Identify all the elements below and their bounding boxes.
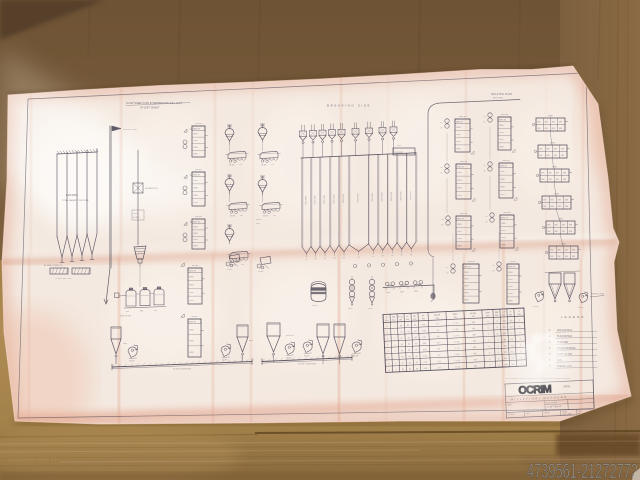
svg-text:888: 888: [558, 206, 561, 208]
svg-text:1: 1: [394, 325, 395, 327]
svg-text:888: 888: [399, 319, 402, 321]
svg-text:8.8: 8.8: [511, 345, 514, 347]
svg-text:888: 888: [537, 128, 540, 130]
svg-text:8: 8: [496, 321, 497, 323]
svg-text:8888 8888: 8888 8888: [382, 192, 384, 201]
svg-text:88-888: 88-888: [227, 269, 232, 271]
svg-text:8888 88: 8888 88: [460, 213, 468, 215]
svg-text:888: 888: [473, 347, 476, 349]
svg-text:ELEVATOR N1: ELEVATOR N1: [145, 187, 158, 190]
svg-text:8.8: 8.8: [437, 336, 440, 338]
svg-text:888: 888: [559, 128, 562, 130]
svg-text:888: 888: [554, 231, 557, 233]
svg-text:ROLLER MILL: ROLLER MILL: [557, 329, 573, 332]
svg-text:8: 8: [388, 357, 389, 359]
svg-text:8888: 8888: [123, 343, 127, 345]
svg-text:88: 88: [409, 369, 411, 371]
svg-text:88: 88: [414, 331, 416, 333]
svg-text:8.88: 8.88: [423, 343, 427, 345]
svg-text:888: 888: [140, 311, 143, 313]
svg-text:8.8: 8.8: [510, 326, 513, 328]
svg-text:8.8: 8.8: [510, 333, 513, 335]
svg-text:888: 888: [473, 341, 476, 343]
svg-text:BUCKET ELEV.: BUCKET ELEV.: [123, 129, 138, 131]
svg-text:8888 88: 8888 88: [193, 174, 200, 176]
svg-text:888: 888: [565, 256, 568, 258]
svg-text:88-888: 88-888: [129, 361, 134, 363]
svg-text:888: 888: [502, 320, 505, 322]
svg-text:888: 888: [406, 319, 409, 321]
svg-text:888: 888: [547, 231, 550, 233]
svg-text:8888: 8888: [386, 292, 390, 294]
svg-text:88-888: 88-888: [258, 271, 263, 273]
svg-text:8.88: 8.88: [423, 362, 427, 364]
svg-text:888: 888: [413, 319, 416, 321]
svg-text:1: 1: [395, 363, 396, 365]
svg-text:88: 88: [415, 349, 417, 351]
svg-text:8888 88: 8888 88: [460, 161, 468, 163]
svg-text:8: 8: [488, 334, 489, 336]
svg-text:1 1 8.8: 1 1 8.8: [454, 348, 460, 350]
svg-text:8888 88: 8888 88: [457, 166, 464, 168]
svg-text:8: 8: [519, 332, 520, 334]
svg-text:88: 88: [402, 363, 404, 365]
svg-text:888: 888: [558, 199, 561, 201]
svg-text:888: 888: [472, 322, 475, 324]
svg-text:88: 88: [416, 362, 418, 364]
svg-text:888: 888: [486, 315, 489, 317]
svg-text:8: 8: [498, 346, 499, 348]
svg-text:88: 88: [447, 267, 449, 269]
svg-text:8: 8: [489, 365, 490, 367]
svg-text:888: 888: [543, 199, 546, 201]
svg-text:8888: 8888: [249, 340, 253, 342]
svg-text:8.8: 8.8: [510, 320, 513, 322]
svg-text:888: 888: [548, 172, 551, 174]
svg-text:88: 88: [493, 265, 495, 267]
svg-text:888: 888: [554, 148, 557, 150]
svg-text:88: 88: [441, 128, 443, 130]
svg-text:8.8: 8.8: [437, 348, 440, 350]
svg-text:88: 88: [306, 259, 308, 261]
svg-text:1: 1: [394, 344, 395, 346]
svg-text:OF SOFT WHEAT: OF SOFT WHEAT: [140, 107, 160, 110]
svg-text:888: 888: [385, 320, 388, 322]
svg-text:888: 888: [154, 310, 157, 312]
svg-text:888: 888: [550, 199, 553, 201]
svg-text:888: 888: [126, 311, 129, 313]
svg-text:8: 8: [488, 340, 489, 342]
svg-text:888: 888: [562, 231, 565, 233]
svg-text:8.88: 8.88: [422, 330, 426, 332]
svg-text:8: 8: [389, 370, 390, 372]
svg-text:8: 8: [498, 364, 499, 366]
svg-text:888: 888: [557, 249, 560, 251]
svg-text:FL: FL: [406, 316, 408, 318]
svg-text:888: 888: [562, 224, 565, 226]
svg-text:8888 88: 8888 88: [503, 212, 511, 214]
svg-text:88: 88: [334, 258, 336, 260]
svg-text:8888 8888: 8888 8888: [410, 191, 412, 200]
svg-text:8888 88: 8888 88: [499, 119, 506, 121]
svg-text:888: 888: [392, 320, 395, 322]
svg-text:8888 8888: 8888 8888: [315, 195, 317, 204]
svg-text:888: 888: [539, 155, 542, 157]
svg-text:8888 8888: 8888 8888: [324, 195, 326, 204]
svg-text:88: 88: [401, 344, 403, 346]
svg-text:888: 888: [565, 199, 568, 201]
svg-text:8: 8: [520, 338, 521, 340]
svg-text:88 888: 88 888: [191, 316, 198, 318]
svg-text:88: 88: [486, 222, 488, 224]
svg-text:88: 88: [401, 255, 403, 257]
svg-text:888: 888: [273, 215, 276, 217]
svg-text:8888 888 888: 8888 888 888: [120, 316, 131, 318]
svg-text:88: 88: [408, 344, 410, 346]
svg-text:88 888: 88 888: [470, 313, 476, 315]
svg-text:888: 888: [473, 334, 476, 336]
svg-text:888: 888: [548, 179, 551, 181]
svg-text:8888 888: 8888 888: [286, 335, 294, 337]
svg-text:888: 888: [572, 256, 575, 258]
svg-text:8888 88: 8888 88: [457, 218, 464, 220]
svg-text:88: 88: [441, 122, 443, 124]
svg-text:8: 8: [497, 327, 498, 329]
svg-text:8888 88: 8888 88: [189, 270, 196, 272]
svg-text:888: 888: [556, 179, 559, 181]
svg-text:24011: 24011: [563, 384, 571, 388]
svg-text:88-888: 88-888: [286, 358, 291, 360]
svg-text:8888 88: 8888 88: [467, 261, 475, 263]
svg-text:8888 8888: 8888 8888: [391, 192, 393, 201]
svg-text:888: 888: [541, 172, 544, 174]
svg-text:FLOUR CONVEYING: FLOUR CONVEYING: [173, 368, 192, 370]
svg-text:88: 88: [484, 171, 486, 173]
svg-text:888: 888: [509, 314, 512, 316]
svg-text:8.88: 8.88: [423, 355, 427, 357]
svg-text:888: 888: [565, 249, 568, 251]
svg-text:88-88: 88-88: [348, 308, 352, 310]
svg-text:88: 88: [441, 167, 443, 169]
svg-text:88: 88: [409, 362, 411, 364]
svg-text:8888 8888: 8888 8888: [334, 195, 336, 204]
svg-text:4739561-21272772: 4739561-21272772: [527, 460, 638, 480]
svg-text:888: 888: [474, 365, 477, 367]
svg-text:888: 888: [472, 316, 475, 318]
svg-text:888: 888: [422, 318, 425, 320]
svg-text:1: 1: [394, 332, 395, 334]
svg-text:8: 8: [387, 332, 388, 334]
svg-text:1 1 8.8: 1 1 8.8: [455, 366, 461, 368]
svg-text:88: 88: [401, 350, 403, 352]
svg-text:8888 88: 8888 88: [502, 160, 510, 162]
svg-text:88 888: 88 888: [192, 265, 199, 267]
svg-text:scratched mark 21: scratched mark 21: [8, 457, 58, 464]
svg-text:888: 888: [547, 224, 550, 226]
svg-text:88: 88: [315, 259, 317, 261]
svg-text:88 888: 88 888: [263, 216, 268, 218]
svg-text:888: 888: [557, 256, 560, 258]
svg-text:8: 8: [497, 333, 498, 335]
svg-text:8888: 8888: [414, 291, 418, 293]
svg-text:1 1 8.8: 1 1 8.8: [453, 329, 459, 331]
svg-text:88: 88: [408, 356, 410, 358]
svg-text:888: 888: [544, 128, 547, 130]
svg-text:8: 8: [519, 326, 520, 328]
svg-text:888: 888: [561, 148, 564, 150]
svg-text:88 888: 88 888: [231, 265, 236, 267]
svg-text:888: 888: [504, 345, 507, 347]
svg-text:1 1 8.8: 1 1 8.8: [453, 323, 459, 325]
svg-text:8: 8: [388, 363, 389, 365]
svg-text:888: 888: [504, 364, 507, 366]
svg-text:8: 8: [489, 346, 490, 348]
svg-text:8.88: 8.88: [422, 337, 426, 339]
svg-text:88: 88: [484, 165, 486, 167]
svg-text:888: 888: [550, 256, 553, 258]
svg-text:88: 88: [343, 257, 345, 259]
svg-text:8888 8888: 8888 8888: [358, 194, 360, 203]
svg-text:888: 888: [569, 231, 572, 233]
svg-text:888: 888: [537, 121, 540, 123]
svg-text:888: 888: [546, 148, 549, 150]
svg-text:888: 888: [240, 215, 243, 217]
svg-text:1 1 8.8: 1 1 8.8: [453, 335, 459, 337]
svg-text:88-88: 88-88: [368, 308, 372, 310]
svg-text:888: 888: [502, 314, 505, 316]
svg-text:88: 88: [486, 216, 488, 218]
svg-text:SIFTER: SIFTER: [195, 169, 203, 171]
svg-text:8.8: 8.8: [437, 330, 440, 332]
svg-text:8.88: 8.88: [423, 349, 427, 351]
svg-text:8.8: 8.8: [438, 361, 441, 363]
svg-text:1 1 8.8: 1 1 8.8: [454, 360, 460, 362]
svg-text:8888 88: 8888 88: [189, 321, 196, 323]
svg-text:888: 888: [503, 327, 506, 329]
svg-text:888: 888: [572, 249, 575, 251]
svg-text:SIFTER: SIFTER: [195, 123, 203, 125]
svg-text:8: 8: [497, 339, 498, 341]
svg-text:8: 8: [387, 326, 388, 328]
svg-text:88: 88: [400, 331, 402, 333]
svg-text:8.8: 8.8: [438, 367, 441, 369]
svg-text:1 1 8.8: 1 1 8.8: [454, 354, 460, 356]
svg-text:88-888: 88-888: [222, 360, 227, 362]
svg-text:88: 88: [410, 254, 412, 256]
svg-text:88-888: 88-888: [578, 307, 583, 309]
svg-text:88: 88: [484, 116, 486, 118]
svg-text:8.8: 8.8: [511, 339, 514, 341]
svg-text:8888 88: 8888 88: [501, 114, 509, 116]
svg-text:888 88: 888 88: [434, 314, 440, 316]
svg-text:8: 8: [388, 351, 389, 353]
svg-text:PNEUM. LIFTS: PNEUM. LIFTS: [591, 294, 605, 296]
svg-text:888: 888: [563, 172, 566, 174]
svg-text:888: 888: [541, 179, 544, 181]
svg-text:88: 88: [442, 225, 444, 227]
svg-text:8.88: 8.88: [422, 324, 426, 326]
svg-text:88: 88: [401, 356, 403, 358]
svg-text:888: 888: [550, 206, 553, 208]
svg-text:888 8: 888 8: [453, 314, 458, 316]
svg-text:888: 888: [503, 339, 506, 341]
svg-text:8888 8888: 8888 8888: [372, 193, 374, 202]
svg-text:8: 8: [488, 327, 489, 329]
svg-text:SIFTER: SIFTER: [195, 216, 203, 218]
svg-text:SCALE: SCALE: [133, 216, 140, 219]
svg-text:8888: 8888: [256, 223, 260, 225]
svg-text:888: 888: [495, 315, 498, 317]
svg-text:888 88: 888 88: [256, 219, 262, 221]
svg-text:8888 88: 8888 88: [193, 128, 200, 130]
svg-text:L E G E N D: L E G E N D: [561, 315, 584, 319]
svg-text:1: 1: [395, 350, 396, 352]
svg-text:888: 888: [239, 164, 242, 166]
svg-text:8.8: 8.8: [437, 342, 440, 344]
svg-text:8888 88: 8888 88: [456, 121, 463, 123]
svg-text:88: 88: [401, 338, 403, 340]
svg-text:88: 88: [407, 325, 409, 327]
svg-text:8.8: 8.8: [438, 355, 441, 357]
svg-text:88: 88: [400, 325, 402, 327]
svg-text:88: 88: [407, 331, 409, 333]
svg-text:888: 888: [561, 155, 564, 157]
svg-text:8: 8: [489, 359, 490, 361]
svg-text:TO MILL SECTION: TO MILL SECTION: [55, 278, 72, 280]
svg-text:888 88: 888 88: [312, 305, 318, 307]
svg-text:FEED: FEED: [133, 213, 139, 215]
svg-text:8.88: 8.88: [424, 368, 428, 370]
svg-text:88 888: 88 888: [229, 165, 234, 167]
svg-text:888: 888: [552, 128, 555, 130]
svg-text:B1 RAW CONVEYOR: B1 RAW CONVEYOR: [44, 264, 63, 267]
svg-text:888 8888: 888 8888: [395, 152, 404, 154]
svg-text:8888 8888: 8888 8888: [401, 192, 403, 201]
svg-text:888: 888: [472, 328, 475, 330]
svg-text:88: 88: [358, 257, 360, 259]
svg-text:888: 888: [474, 359, 477, 361]
svg-text:8: 8: [387, 338, 388, 340]
svg-text:8888 88: 8888 88: [459, 116, 467, 118]
svg-text:8888 8888: 8888 8888: [306, 196, 308, 205]
svg-text:88: 88: [493, 271, 495, 273]
svg-text:88: 88: [416, 368, 418, 370]
svg-text:1: 1: [394, 338, 395, 340]
svg-text:888: 888: [539, 148, 542, 150]
svg-text:8888 88: 8888 88: [500, 165, 507, 167]
svg-text:888: 888: [546, 155, 549, 157]
svg-text:TOTAL CAPACITY 500 TONS: TOTAL CAPACITY 500 TONS: [62, 199, 89, 202]
svg-text:888: 888: [271, 164, 274, 166]
svg-text:888: 888: [552, 121, 555, 123]
svg-text:RO LL: RO LL: [398, 316, 404, 318]
svg-text:88: 88: [324, 258, 326, 260]
svg-text:88 888: 88 888: [230, 216, 235, 218]
svg-text:8.8: 8.8: [436, 323, 439, 325]
svg-text:88: 88: [414, 324, 416, 326]
svg-text:8888: 8888: [397, 145, 401, 147]
svg-text:8: 8: [498, 358, 499, 360]
svg-text:888: 888: [559, 121, 562, 123]
svg-text:88: 88: [408, 337, 410, 339]
svg-text:88: 88: [391, 255, 393, 257]
svg-text:888: 888: [565, 206, 568, 208]
svg-text:8888 8888: 8888 8888: [343, 194, 345, 203]
svg-text:C 8: C 8: [502, 311, 505, 313]
svg-text:88: 88: [415, 337, 417, 339]
svg-text:88: 88: [382, 256, 384, 258]
svg-text:888: 888: [503, 333, 506, 335]
svg-text:88 888: 88 888: [261, 165, 266, 167]
svg-text:88: 88: [484, 122, 486, 124]
svg-text:888: 888: [504, 358, 507, 360]
svg-text:888: 888: [556, 172, 559, 174]
svg-text:888: 888: [544, 121, 547, 123]
svg-text:888: 888: [504, 352, 507, 354]
svg-text:88: 88: [415, 343, 417, 345]
svg-text:8: 8: [498, 352, 499, 354]
svg-text:8888 88: 8888 88: [501, 217, 508, 219]
svg-text:RAW BINS: RAW BINS: [66, 194, 78, 197]
svg-text:8888 88: 8888 88: [508, 266, 515, 268]
svg-text:8: 8: [487, 321, 488, 323]
svg-text:88: 88: [415, 356, 417, 358]
svg-text:888: 888: [241, 264, 244, 266]
svg-text:RM: RM: [392, 317, 395, 319]
svg-text:8 88: 8 88: [486, 312, 490, 314]
svg-text:8: 8: [387, 345, 388, 347]
svg-text:888: 888: [518, 314, 521, 316]
svg-text:888: 888: [543, 206, 546, 208]
svg-text:888: 888: [563, 179, 566, 181]
svg-text:1: 1: [395, 357, 396, 359]
svg-text:888 8: 888 8: [510, 261, 516, 263]
svg-text:888: 888: [550, 249, 553, 251]
svg-text:8: 8: [519, 320, 520, 322]
svg-text:FLOUR CONVEYING: FLOUR CONVEYING: [298, 364, 317, 366]
svg-text:PELLETING PLANT: PELLETING PLANT: [491, 93, 513, 96]
svg-text:88: 88: [402, 369, 404, 371]
svg-text:8888: 8888: [400, 291, 404, 293]
svg-text:88: 88: [372, 256, 374, 258]
svg-text:888: 888: [554, 224, 557, 226]
svg-text:888: 888: [495, 312, 498, 314]
svg-text:BREAKING SIDE: BREAKING SIDE: [327, 104, 371, 108]
svg-text:88-888: 88-888: [533, 306, 538, 308]
svg-text:88: 88: [442, 219, 444, 221]
svg-text:888: 888: [436, 318, 439, 320]
svg-text:8: 8: [489, 352, 490, 354]
svg-text:88: 88: [447, 273, 449, 275]
svg-text:888: 888: [454, 317, 457, 319]
svg-text:1: 1: [396, 369, 397, 371]
svg-text:8888 88: 8888 88: [193, 221, 200, 223]
svg-text:888: 888: [554, 155, 557, 157]
svg-text:888: 888: [473, 353, 476, 355]
svg-text:SECTION: SECTION: [493, 98, 503, 100]
svg-text:1 1 8.8: 1 1 8.8: [454, 341, 460, 343]
svg-text:8888 88: 8888 88: [464, 266, 471, 268]
svg-text:8: 8: [518, 311, 519, 313]
svg-text:88: 88: [408, 350, 410, 352]
svg-text:PLANSIFTER: PLANSIFTER: [557, 335, 572, 338]
svg-text:888: 888: [569, 224, 572, 226]
svg-text:88: 88: [441, 173, 443, 175]
